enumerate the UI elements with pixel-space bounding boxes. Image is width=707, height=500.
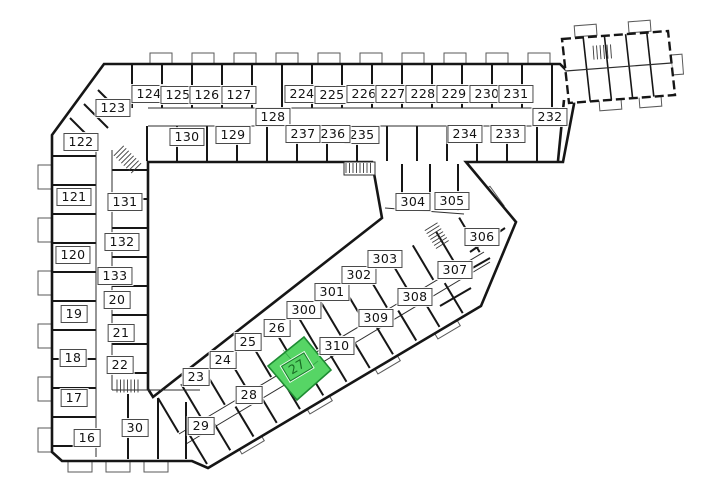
room-label-17[interactable]: 17 bbox=[61, 389, 88, 407]
room-label-29[interactable]: 29 bbox=[188, 417, 215, 435]
room-label-306[interactable]: 306 bbox=[464, 228, 499, 246]
room-label-28[interactable]: 28 bbox=[236, 386, 263, 404]
room-label-132[interactable]: 132 bbox=[104, 233, 139, 251]
room-label-122[interactable]: 122 bbox=[63, 133, 98, 151]
room-label-231[interactable]: 231 bbox=[498, 85, 533, 103]
room-label-228[interactable]: 228 bbox=[405, 85, 440, 103]
room-label-121[interactable]: 121 bbox=[56, 188, 91, 206]
room-label-301[interactable]: 301 bbox=[314, 283, 349, 301]
room-label-236[interactable]: 236 bbox=[315, 125, 350, 143]
room-label-305[interactable]: 305 bbox=[434, 192, 469, 210]
room-label-237[interactable]: 237 bbox=[285, 125, 320, 143]
room-label-18[interactable]: 18 bbox=[60, 349, 87, 367]
room-label-310[interactable]: 310 bbox=[319, 337, 354, 355]
room-label-234[interactable]: 234 bbox=[447, 125, 482, 143]
room-label-307[interactable]: 307 bbox=[437, 261, 472, 279]
room-label-127[interactable]: 127 bbox=[221, 86, 256, 104]
room-label-304[interactable]: 304 bbox=[395, 193, 430, 211]
room-label-309[interactable]: 309 bbox=[358, 309, 393, 327]
room-label-21[interactable]: 21 bbox=[108, 324, 135, 342]
room-label-27[interactable]: 27 bbox=[281, 352, 313, 381]
room-label-302[interactable]: 302 bbox=[341, 266, 376, 284]
room-label-24[interactable]: 24 bbox=[210, 351, 237, 369]
room-label-133[interactable]: 133 bbox=[97, 267, 132, 285]
room-label-232[interactable]: 232 bbox=[532, 108, 567, 126]
room-label-22[interactable]: 22 bbox=[107, 356, 134, 374]
room-label-229[interactable]: 229 bbox=[436, 85, 471, 103]
room-label-131[interactable]: 131 bbox=[107, 193, 142, 211]
room-label-303[interactable]: 303 bbox=[367, 250, 402, 268]
room-label-123[interactable]: 123 bbox=[95, 99, 130, 117]
floor-plan-viewer: 1617181920212223242526272829301201211221… bbox=[0, 0, 707, 500]
room-label-23[interactable]: 23 bbox=[183, 368, 210, 386]
room-label-300[interactable]: 300 bbox=[286, 301, 321, 319]
room-label-128[interactable]: 128 bbox=[255, 108, 290, 126]
room-label-20[interactable]: 20 bbox=[104, 291, 131, 309]
room-labels-layer: 1617181920212223242526272829301201211221… bbox=[0, 0, 707, 500]
room-label-130[interactable]: 130 bbox=[169, 128, 204, 146]
room-label-308[interactable]: 308 bbox=[397, 288, 432, 306]
room-label-26[interactable]: 26 bbox=[264, 319, 291, 337]
room-label-126[interactable]: 126 bbox=[189, 86, 224, 104]
room-label-16[interactable]: 16 bbox=[74, 429, 101, 447]
room-label-120[interactable]: 120 bbox=[55, 246, 90, 264]
room-label-30[interactable]: 30 bbox=[122, 419, 149, 437]
room-label-25[interactable]: 25 bbox=[235, 333, 262, 351]
room-label-233[interactable]: 233 bbox=[490, 125, 525, 143]
room-label-225[interactable]: 225 bbox=[314, 86, 349, 104]
room-label-129[interactable]: 129 bbox=[215, 126, 250, 144]
room-label-19[interactable]: 19 bbox=[61, 305, 88, 323]
